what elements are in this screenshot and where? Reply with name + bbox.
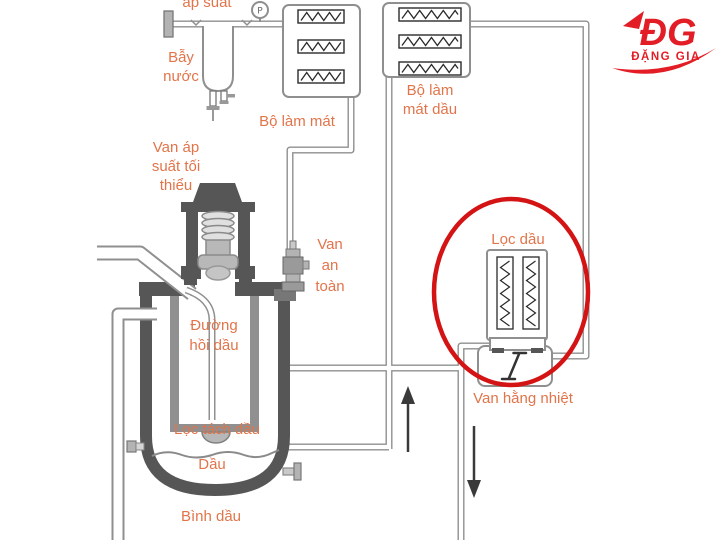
label-oil: Dầu: [198, 456, 226, 473]
gauge-letter: P: [257, 7, 263, 17]
label-safety-valve-1: Van: [317, 236, 343, 253]
label-water-trap-1: Bẫy: [168, 49, 194, 66]
tank-left-fitting: [127, 441, 144, 452]
flow-arrow-down: [467, 426, 481, 498]
min-pressure-valve: [181, 183, 255, 285]
label-min-pressure-valve-2: suất tối: [152, 158, 200, 175]
tank-drain-plug: [283, 463, 301, 480]
label-top-pressure: áp suất: [182, 0, 232, 11]
label-safety-valve-3: toàn: [315, 278, 344, 295]
label-min-pressure-valve-1: Van áp: [153, 139, 199, 156]
label-min-pressure-valve-3: thiểu: [160, 177, 193, 194]
pipe-end-flange: [164, 11, 173, 37]
label-safety-valve-2: an: [322, 257, 339, 274]
label-oil-return-2: hồi dầu: [189, 337, 238, 354]
label-oil-separator: Lọc tách dầu: [174, 421, 260, 438]
label-oil-cooler-1: Bộ làm: [407, 82, 454, 99]
oil-filter: [487, 250, 547, 353]
oil-system-schematic: P: [0, 0, 720, 540]
oil-cooler: [383, 3, 470, 77]
water-trap: [203, 26, 235, 121]
diagram-canvas: P: [0, 0, 720, 540]
label-thermostatic-valve: Van hằng nhiệt: [473, 390, 574, 407]
pressure-gauge: P: [252, 2, 268, 22]
label-oil-cooler-2: mát dầu: [403, 101, 457, 118]
valve-spring-icon: [202, 212, 234, 242]
label-air-cooler: Bộ làm mát: [259, 113, 336, 130]
label-oil-filter: Lọc dầu: [491, 231, 544, 248]
flow-arrow-up: [401, 386, 415, 452]
safety-valve: [274, 241, 309, 301]
logo-monogram: ĐG: [640, 12, 697, 54]
air-cooler: [283, 5, 360, 97]
label-oil-return-1: Đường: [190, 317, 237, 334]
dang-gia-logo: ĐG ĐẶNG GIA: [612, 11, 716, 74]
label-oil-tank: Bình dầu: [181, 508, 241, 525]
label-water-trap-2: nước: [163, 68, 199, 85]
